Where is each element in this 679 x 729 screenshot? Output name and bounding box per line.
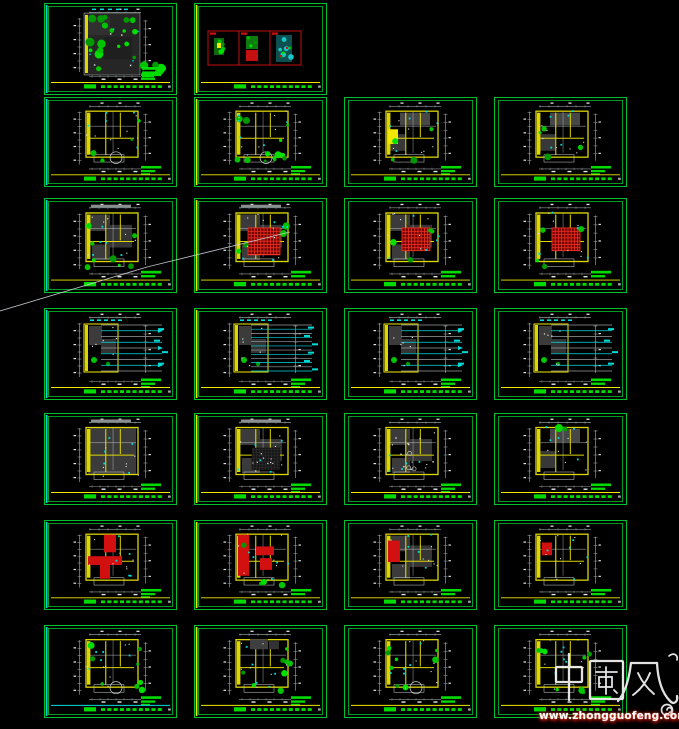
sheet-canvas xyxy=(494,308,627,400)
sheet-r5-c3[interactable] xyxy=(344,413,477,505)
sheet-r3-c2[interactable] xyxy=(194,198,327,293)
sheet-r5-c4[interactable] xyxy=(494,413,627,505)
sheet-r2-c3[interactable] xyxy=(344,97,477,187)
sheet-canvas xyxy=(194,3,327,95)
sheet-r4-c4[interactable] xyxy=(494,308,627,400)
sheet-canvas xyxy=(44,520,177,610)
sheet-r7-c3[interactable] xyxy=(344,625,477,718)
sheet-canvas xyxy=(344,308,477,400)
sheet-canvas xyxy=(344,198,477,293)
sheet-r6-c1[interactable] xyxy=(44,520,177,610)
sheet-r3-c1[interactable] xyxy=(44,198,177,293)
sheet-canvas xyxy=(494,413,627,505)
sheet-r2-c2[interactable] xyxy=(194,97,327,187)
sheet-canvas xyxy=(44,413,177,505)
sheet-canvas xyxy=(494,198,627,293)
watermark-url: www.zhongguofeng.com xyxy=(539,710,677,722)
sheet-r2-c4[interactable] xyxy=(494,97,627,187)
sheet-r4-c3[interactable] xyxy=(344,308,477,400)
sheet-r4-c2[interactable] xyxy=(194,308,327,400)
sheet-canvas xyxy=(194,97,327,187)
sheet-canvas xyxy=(44,198,177,293)
sheet-canvas xyxy=(194,198,327,293)
zhongguofeng-watermark: 中國风 xyxy=(538,646,679,729)
sheet-r6-c2[interactable] xyxy=(194,520,327,610)
sheet-canvas xyxy=(494,97,627,187)
sheet-r6-c4[interactable] xyxy=(494,520,627,610)
sheet-r1-c2[interactable] xyxy=(194,3,327,95)
sheet-r7-c1[interactable] xyxy=(44,625,177,718)
sheet-r3-c3[interactable] xyxy=(344,198,477,293)
sheet-r7-c2[interactable] xyxy=(194,625,327,718)
sheet-canvas xyxy=(494,520,627,610)
sheet-r4-c1[interactable] xyxy=(44,308,177,400)
sheet-canvas xyxy=(44,308,177,400)
sheet-r6-c3[interactable] xyxy=(344,520,477,610)
sheet-canvas xyxy=(194,625,327,718)
sheet-r5-c1[interactable] xyxy=(44,413,177,505)
sheet-canvas xyxy=(44,625,177,718)
sheet-canvas xyxy=(44,97,177,187)
sheet-canvas xyxy=(344,97,477,187)
sheet-canvas xyxy=(194,520,327,610)
sheet-r1-c1[interactable] xyxy=(44,3,177,95)
sheet-r3-c4[interactable] xyxy=(494,198,627,293)
sheet-canvas xyxy=(194,413,327,505)
sheet-canvas xyxy=(44,3,177,95)
sheet-r2-c1[interactable] xyxy=(44,97,177,187)
sheet-canvas xyxy=(194,308,327,400)
sheet-canvas xyxy=(344,625,477,718)
sheet-canvas xyxy=(344,520,477,610)
cad-workspace: 中國风 xyxy=(0,0,679,729)
sheet-canvas xyxy=(344,413,477,505)
sheet-r5-c2[interactable] xyxy=(194,413,327,505)
